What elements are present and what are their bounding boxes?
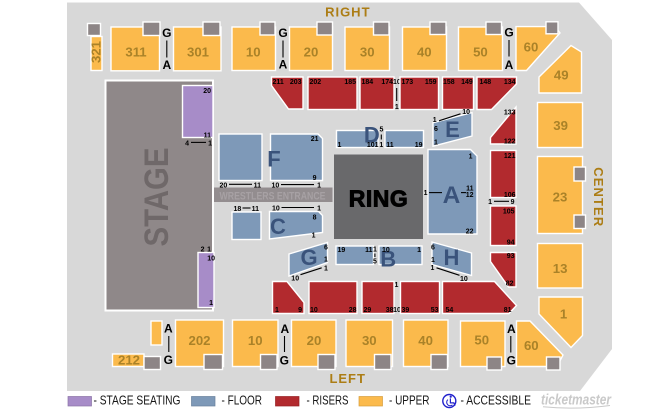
svg-text:RING: RING <box>349 185 409 211</box>
svg-text:5: 5 <box>373 259 377 266</box>
svg-text:- STAGE SEATING: - STAGE SEATING <box>94 394 181 408</box>
svg-text:10: 10 <box>460 276 468 283</box>
svg-text:10: 10 <box>462 109 470 116</box>
svg-text:C: C <box>270 214 286 239</box>
svg-text:H: H <box>444 245 460 270</box>
svg-text:1: 1 <box>395 104 399 111</box>
svg-text:30: 30 <box>362 333 377 348</box>
svg-text:A: A <box>162 58 171 72</box>
svg-text:22: 22 <box>466 229 474 236</box>
svg-text:1: 1 <box>324 257 328 264</box>
svg-text:148: 148 <box>480 79 492 86</box>
svg-text:19: 19 <box>415 142 423 149</box>
svg-text:40: 40 <box>417 45 432 60</box>
svg-text:CENTER: CENTER <box>591 167 606 227</box>
svg-text:A: A <box>507 322 516 336</box>
svg-text:1: 1 <box>431 257 435 264</box>
svg-text:203: 203 <box>290 79 302 86</box>
svg-text:11: 11 <box>386 142 394 149</box>
svg-text:11: 11 <box>365 247 373 254</box>
svg-text:39: 39 <box>553 118 568 133</box>
svg-text:20: 20 <box>304 45 319 60</box>
svg-text:1: 1 <box>395 282 399 289</box>
svg-text:82: 82 <box>506 280 514 287</box>
svg-text:5: 5 <box>380 127 384 134</box>
svg-text:RIGHT: RIGHT <box>325 5 370 20</box>
svg-text:1: 1 <box>417 247 421 254</box>
svg-text:G: G <box>504 26 513 40</box>
svg-text:10: 10 <box>272 183 280 190</box>
svg-text:20: 20 <box>220 182 228 189</box>
svg-text:23: 23 <box>553 190 568 205</box>
svg-text:10: 10 <box>246 45 261 60</box>
svg-text:30: 30 <box>360 45 375 60</box>
svg-text:184: 184 <box>362 79 374 86</box>
svg-text:1: 1 <box>560 307 567 322</box>
svg-text:12: 12 <box>466 192 474 199</box>
svg-text:134: 134 <box>504 79 516 86</box>
svg-text:8: 8 <box>313 214 317 221</box>
svg-text:10: 10 <box>248 333 263 348</box>
svg-text:G: G <box>507 354 516 368</box>
svg-text:159: 159 <box>425 79 437 86</box>
svg-text:19: 19 <box>338 247 346 254</box>
svg-text:49: 49 <box>554 68 569 83</box>
svg-text:A: A <box>280 322 289 336</box>
svg-text:202: 202 <box>188 333 210 348</box>
svg-text:11: 11 <box>204 132 212 139</box>
svg-text:6: 6 <box>434 126 438 133</box>
svg-text:185: 185 <box>344 79 356 86</box>
svg-text:1: 1 <box>373 247 377 254</box>
svg-text:E: E <box>445 117 460 142</box>
svg-text:10: 10 <box>291 276 299 283</box>
svg-text:1: 1 <box>488 199 492 206</box>
svg-text:311: 311 <box>125 45 146 60</box>
svg-text:301: 301 <box>187 45 209 60</box>
svg-text:6: 6 <box>431 245 435 252</box>
svg-text:20: 20 <box>203 88 211 95</box>
svg-text:- UPPER: - UPPER <box>389 394 430 408</box>
svg-text:A: A <box>279 58 288 72</box>
svg-text:A: A <box>505 58 514 72</box>
svg-text:106: 106 <box>504 192 516 199</box>
svg-text:20: 20 <box>307 333 322 348</box>
svg-text:1: 1 <box>434 139 438 146</box>
svg-text:50: 50 <box>473 45 488 60</box>
svg-text:211: 211 <box>273 79 284 86</box>
svg-text:1: 1 <box>317 183 321 190</box>
svg-text:9: 9 <box>313 175 317 182</box>
svg-text:10: 10 <box>310 307 318 314</box>
svg-text:10: 10 <box>207 256 215 263</box>
svg-text:133: 133 <box>504 110 516 117</box>
svg-text:21: 21 <box>311 136 319 143</box>
svg-text:A: A <box>443 182 461 209</box>
svg-text:- FLOOR: - FLOOR <box>222 394 263 408</box>
svg-text:121: 121 <box>504 153 516 160</box>
svg-text:1: 1 <box>338 142 342 149</box>
svg-text:LEFT: LEFT <box>329 371 366 386</box>
svg-text:173: 173 <box>402 79 414 86</box>
svg-text:149: 149 <box>461 79 473 86</box>
svg-text:1: 1 <box>207 246 211 253</box>
svg-text:1: 1 <box>469 154 473 161</box>
svg-text:1: 1 <box>209 300 213 307</box>
svg-text:60: 60 <box>524 40 539 55</box>
svg-text:60: 60 <box>524 338 539 353</box>
svg-text:1: 1 <box>431 265 435 272</box>
svg-text:321: 321 <box>89 41 104 63</box>
svg-text:81: 81 <box>504 307 512 314</box>
svg-text:54: 54 <box>446 307 454 314</box>
svg-text:93: 93 <box>507 253 515 260</box>
svg-text:A: A <box>164 322 173 336</box>
svg-text:6: 6 <box>324 245 328 252</box>
svg-text:WRESTLERS ENTRANCE: WRESTLERS ENTRANCE <box>220 190 326 202</box>
svg-text:50: 50 <box>474 333 489 348</box>
svg-text:29: 29 <box>364 307 372 314</box>
svg-text:G: G <box>278 26 287 40</box>
svg-text:1: 1 <box>433 117 437 124</box>
svg-text:1: 1 <box>324 266 328 273</box>
svg-text:11: 11 <box>254 182 262 189</box>
svg-text:28: 28 <box>349 307 357 314</box>
svg-text:1: 1 <box>312 233 316 240</box>
svg-text:F: F <box>267 147 280 172</box>
svg-text:9: 9 <box>298 307 302 314</box>
svg-text:212: 212 <box>118 353 140 368</box>
svg-text:G: G <box>300 245 317 270</box>
svg-text:4: 4 <box>185 140 189 147</box>
svg-text:101: 101 <box>367 142 379 149</box>
svg-text:10: 10 <box>382 247 390 254</box>
svg-text:1: 1 <box>379 142 383 149</box>
svg-text:G: G <box>280 354 289 368</box>
svg-text:39: 39 <box>402 307 410 314</box>
svg-text:2: 2 <box>201 246 205 253</box>
svg-text:94: 94 <box>507 239 515 246</box>
svg-text:174: 174 <box>381 79 393 86</box>
svg-text:- RISERS: - RISERS <box>307 394 349 408</box>
svg-text:STAGE: STAGE <box>138 148 176 247</box>
svg-text:40: 40 <box>418 333 433 348</box>
svg-text:G: G <box>162 26 171 40</box>
svg-text:105: 105 <box>503 208 515 215</box>
svg-text:53: 53 <box>431 307 439 314</box>
svg-text:1: 1 <box>208 140 212 147</box>
svg-text:9: 9 <box>511 199 515 206</box>
svg-text:- ACCESSIBLE: - ACCESSIBLE <box>461 394 532 408</box>
svg-text:13: 13 <box>553 261 568 276</box>
svg-text:158: 158 <box>443 79 455 86</box>
svg-text:202: 202 <box>310 79 322 86</box>
svg-text:122: 122 <box>504 139 516 146</box>
svg-text:1: 1 <box>275 307 279 314</box>
svg-text:G: G <box>164 353 173 367</box>
svg-text:1: 1 <box>424 190 428 197</box>
